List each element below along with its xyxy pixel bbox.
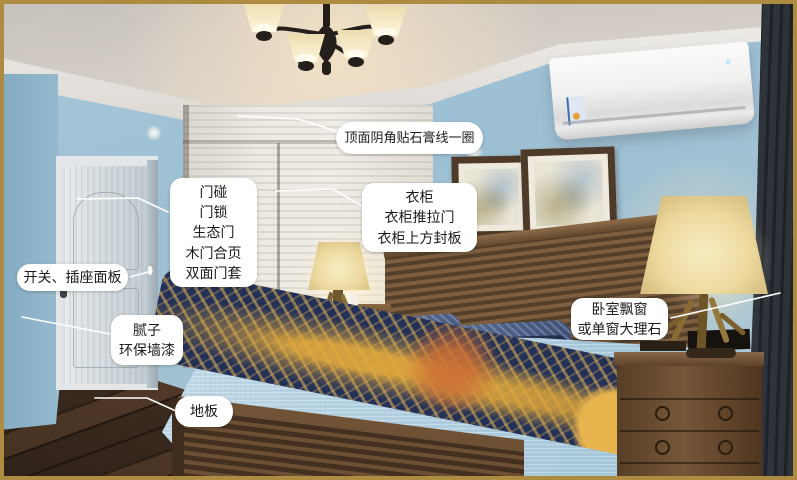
label-wall-finish: 腻子 环保墙漆 — [111, 315, 183, 365]
pointer-switch-socket — [130, 271, 152, 277]
label-line: 衣柜推拉门 — [385, 207, 455, 227]
label-line: 顶面阴角贴石膏线一圈 — [344, 129, 474, 148]
label-floor: 地板 — [175, 396, 233, 427]
label-line: 或单窗大理石 — [578, 319, 662, 339]
label-line: 衣柜上方封板 — [378, 228, 462, 248]
label-line: 卧室飘窗 — [592, 299, 648, 319]
pointer-bay-window — [671, 293, 780, 318]
pointer-ceiling-molding — [238, 116, 336, 131]
label-switch-socket: 开关、插座面板 — [17, 264, 128, 291]
pointer-floor — [95, 398, 176, 411]
label-bay-window: 卧室飘窗 或单窗大理石 — [571, 298, 668, 340]
label-line: 地板 — [190, 401, 218, 421]
pointer-door-hardware — [77, 198, 168, 212]
label-line: 双面门套 — [186, 263, 242, 283]
label-line: 腻子 — [133, 320, 161, 340]
label-line: 门锁 — [200, 202, 228, 222]
label-wardrobe: 衣柜 衣柜推拉门 衣柜上方封板 — [362, 183, 477, 252]
label-line: 生态门 — [193, 222, 235, 242]
label-line: 木门合页 — [186, 243, 242, 263]
pointer-wall-finish — [22, 317, 110, 334]
label-ceiling-molding: 顶面阴角贴石膏线一圈 — [336, 122, 483, 154]
label-line: 开关、插座面板 — [24, 267, 122, 287]
label-line: 衣柜 — [406, 187, 434, 207]
pointer-wardrobe — [276, 189, 362, 206]
annotated-bedroom-photo: 顶面阴角贴石膏线一圈 门碰 门锁 生态门 木门合页 双面门套 开关、插座面板 腻… — [0, 0, 797, 480]
label-line: 门碰 — [200, 182, 228, 202]
label-door-hardware: 门碰 门锁 生态门 木门合页 双面门套 — [170, 178, 257, 287]
label-line: 环保墙漆 — [119, 340, 175, 360]
